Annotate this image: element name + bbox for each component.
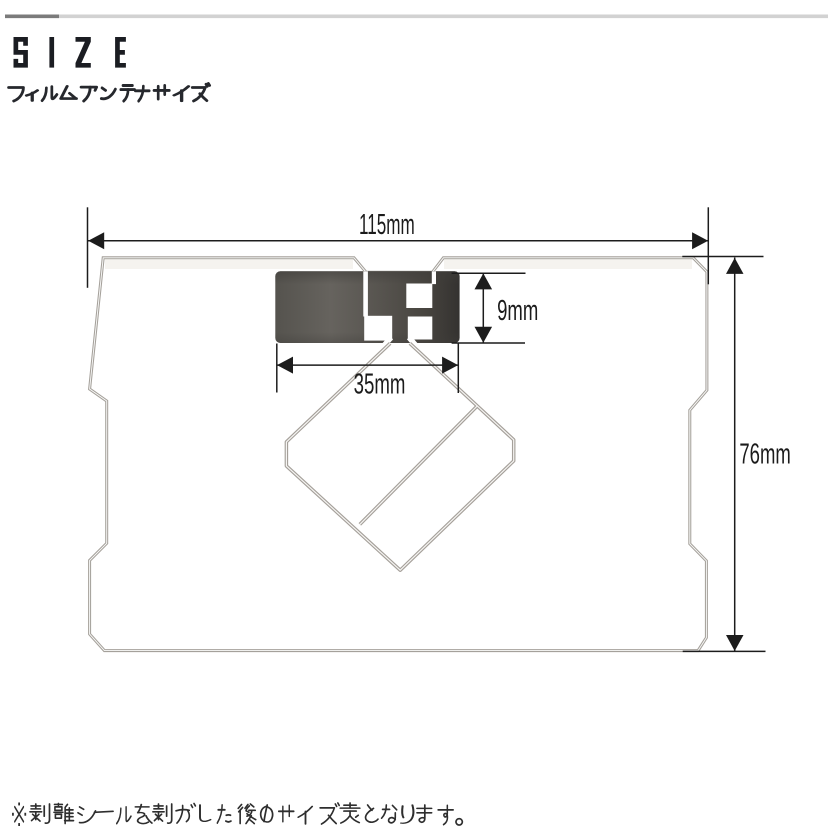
svg-text:35mm: 35mm [354, 369, 406, 401]
svg-text:76mm: 76mm [739, 439, 790, 471]
svg-text:115mm: 115mm [359, 209, 415, 241]
svg-text:9mm: 9mm [497, 295, 538, 327]
